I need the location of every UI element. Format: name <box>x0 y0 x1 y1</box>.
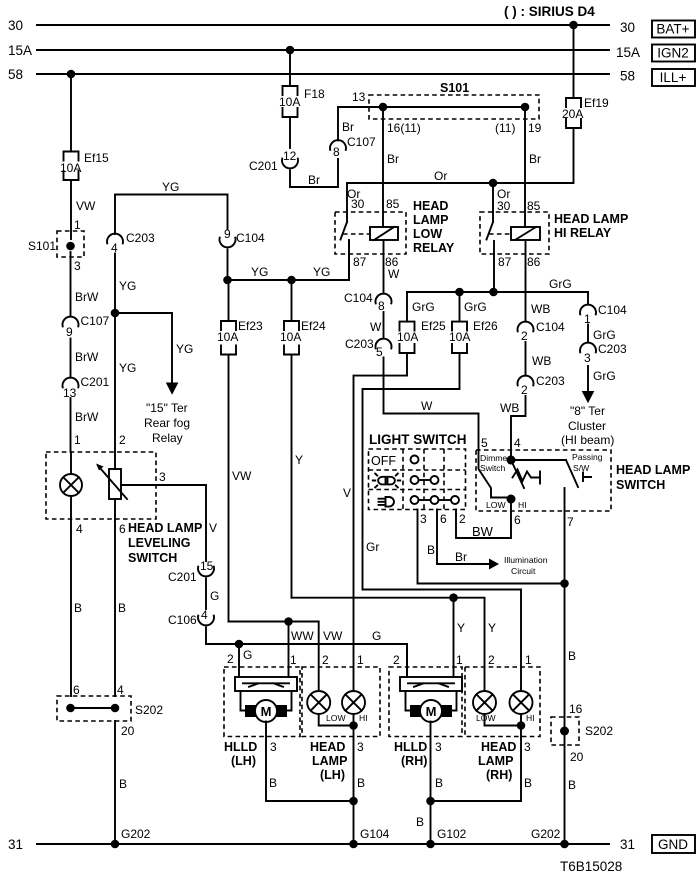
svg-text:"8" Ter: "8" Ter <box>570 404 605 418</box>
svg-text:15A: 15A <box>616 45 640 60</box>
svg-text:Ef23: Ef23 <box>238 319 263 333</box>
svg-text:HI: HI <box>359 713 368 723</box>
svg-text:V: V <box>209 521 217 535</box>
svg-text:YG: YG <box>251 265 268 279</box>
svg-text:C203: C203 <box>536 374 565 388</box>
svg-text:5: 5 <box>376 345 383 359</box>
svg-text:M: M <box>426 704 437 719</box>
svg-text:13: 13 <box>352 90 366 104</box>
svg-text:1: 1 <box>357 653 364 667</box>
svg-text:19: 19 <box>528 121 542 135</box>
svg-text:Relay: Relay <box>152 431 183 445</box>
svg-text:BrW: BrW <box>75 350 99 364</box>
svg-text:BW: BW <box>472 524 494 539</box>
svg-text:31: 31 <box>8 837 23 852</box>
svg-text:15: 15 <box>200 559 214 573</box>
svg-text:Br: Br <box>387 152 399 166</box>
svg-text:2: 2 <box>521 383 528 397</box>
svg-text:SWITCH: SWITCH <box>616 478 665 492</box>
svg-text:10A: 10A <box>60 161 81 175</box>
svg-text:WW: WW <box>291 629 314 643</box>
svg-text:RELAY: RELAY <box>413 241 455 255</box>
svg-text:BrW: BrW <box>75 410 99 424</box>
svg-text:C106: C106 <box>168 613 197 627</box>
svg-text:Cluster: Cluster <box>568 419 606 433</box>
svg-text:G: G <box>210 589 219 603</box>
svg-text:LOW: LOW <box>326 713 346 723</box>
svg-text:Ef26: Ef26 <box>473 319 498 333</box>
svg-text:B: B <box>427 543 435 557</box>
svg-text:B: B <box>435 776 443 790</box>
svg-text:Or: Or <box>434 169 447 183</box>
svg-text:VW: VW <box>323 629 343 643</box>
svg-text:12: 12 <box>283 149 297 163</box>
svg-text:3: 3 <box>357 740 364 754</box>
svg-text:2: 2 <box>322 653 329 667</box>
svg-text:Circuit: Circuit <box>511 566 536 576</box>
svg-text:Ef15: Ef15 <box>84 151 109 165</box>
svg-text:C201: C201 <box>249 159 278 173</box>
svg-text:1: 1 <box>74 218 81 232</box>
svg-text:1: 1 <box>456 653 463 667</box>
svg-text:LIGHT SWITCH: LIGHT SWITCH <box>369 432 467 447</box>
svg-text:C104: C104 <box>344 291 373 305</box>
svg-text:GND: GND <box>658 837 688 852</box>
svg-text:7: 7 <box>567 515 574 529</box>
svg-text:2: 2 <box>521 329 528 343</box>
svg-text:LAMP: LAMP <box>413 213 448 227</box>
svg-text:C203: C203 <box>345 337 374 351</box>
svg-text:Br: Br <box>308 173 320 187</box>
svg-text:4: 4 <box>514 436 521 450</box>
svg-text:Y: Y <box>488 621 496 635</box>
svg-text:M: M <box>261 704 272 719</box>
svg-text:IGN2: IGN2 <box>657 46 689 61</box>
svg-text:VW: VW <box>76 199 96 213</box>
svg-text:C104: C104 <box>536 320 565 334</box>
svg-text:HLLD: HLLD <box>224 740 257 754</box>
svg-text:C201: C201 <box>81 375 110 389</box>
svg-text:30: 30 <box>351 197 365 211</box>
svg-text:GrG: GrG <box>412 300 435 314</box>
svg-text:Ef19: Ef19 <box>584 96 609 110</box>
svg-text:58: 58 <box>620 69 635 84</box>
svg-text:HI: HI <box>518 500 527 510</box>
svg-text:G202: G202 <box>121 827 151 841</box>
svg-text:Br: Br <box>529 152 541 166</box>
svg-text:SWITCH: SWITCH <box>128 551 177 565</box>
svg-text:HEAD LAMP: HEAD LAMP <box>128 521 202 535</box>
svg-text:Switch: Switch <box>480 463 506 473</box>
svg-text:58: 58 <box>8 67 23 82</box>
svg-text:ILL+: ILL+ <box>660 70 687 85</box>
svg-text:LOW: LOW <box>413 227 442 241</box>
svg-text:31: 31 <box>620 837 635 852</box>
svg-text:9: 9 <box>66 325 73 339</box>
svg-text:87: 87 <box>498 255 512 269</box>
svg-text:LOW: LOW <box>476 713 496 723</box>
svg-text:S/W: S/W <box>573 463 590 473</box>
svg-text:GrG: GrG <box>593 328 616 342</box>
svg-text:V: V <box>343 486 351 500</box>
svg-text:3: 3 <box>435 740 442 754</box>
svg-text:C107: C107 <box>81 314 110 328</box>
svg-text:GrG: GrG <box>464 300 487 314</box>
svg-text:4: 4 <box>117 683 124 697</box>
svg-text:Ef24: Ef24 <box>301 319 326 333</box>
svg-text:HI RELAY: HI RELAY <box>554 226 612 240</box>
svg-text:T6B15028: T6B15028 <box>560 859 622 874</box>
svg-text:S101: S101 <box>28 239 56 253</box>
svg-text:W: W <box>370 320 382 334</box>
svg-text:(RH): (RH) <box>401 754 427 768</box>
svg-text:HI: HI <box>526 713 535 723</box>
svg-text:LAMP: LAMP <box>478 754 513 768</box>
svg-text:6: 6 <box>119 522 126 536</box>
svg-text:B: B <box>568 649 576 663</box>
svg-text:9: 9 <box>224 227 231 241</box>
svg-text:2: 2 <box>119 433 126 447</box>
svg-text:GrG: GrG <box>593 369 616 383</box>
svg-text:B: B <box>74 601 82 615</box>
svg-text:3: 3 <box>74 259 81 273</box>
svg-text:1: 1 <box>525 653 532 667</box>
svg-text:BrW: BrW <box>75 290 99 304</box>
svg-text:30: 30 <box>497 199 511 213</box>
svg-text:6: 6 <box>514 513 521 527</box>
svg-text:8: 8 <box>333 145 340 159</box>
svg-text:86: 86 <box>527 255 541 269</box>
svg-text:S202: S202 <box>585 724 613 738</box>
svg-text:30: 30 <box>8 18 23 33</box>
svg-text:Illumination: Illumination <box>504 555 548 565</box>
svg-text:HEAD: HEAD <box>310 740 345 754</box>
svg-text:6: 6 <box>73 683 80 697</box>
svg-text:W: W <box>421 399 433 413</box>
svg-text:G: G <box>243 648 252 662</box>
svg-text:G104: G104 <box>360 827 390 841</box>
svg-text:4: 4 <box>201 608 208 622</box>
svg-text:Dimmer: Dimmer <box>480 453 510 463</box>
svg-text:LOW: LOW <box>486 500 506 510</box>
svg-text:G102: G102 <box>437 827 467 841</box>
svg-text:3: 3 <box>584 351 591 365</box>
svg-text:20: 20 <box>121 724 135 738</box>
svg-text:"15" Ter: "15" Ter <box>146 401 188 415</box>
svg-text:85: 85 <box>386 197 400 211</box>
svg-text:16: 16 <box>569 702 583 716</box>
svg-text:B: B <box>416 815 424 829</box>
svg-text:10A: 10A <box>217 330 238 344</box>
svg-text:BAT+: BAT+ <box>656 22 689 37</box>
svg-text:VW: VW <box>232 469 252 483</box>
svg-text:3: 3 <box>524 740 531 754</box>
svg-text:F18: F18 <box>304 87 325 101</box>
svg-text:Passing: Passing <box>572 452 603 462</box>
svg-text:OFF: OFF <box>371 454 396 468</box>
svg-text:2: 2 <box>488 653 495 667</box>
svg-text:2: 2 <box>227 652 234 666</box>
svg-text:(11): (11) <box>495 121 515 135</box>
svg-text:3: 3 <box>159 470 166 484</box>
svg-text:HEAD: HEAD <box>413 199 448 213</box>
svg-text:HEAD: HEAD <box>481 740 516 754</box>
svg-text:1: 1 <box>74 433 81 447</box>
svg-text:LEVELING: LEVELING <box>128 536 191 550</box>
svg-text:WB: WB <box>500 401 519 415</box>
svg-text:B: B <box>524 776 532 790</box>
svg-text:HLLD: HLLD <box>394 740 427 754</box>
svg-text:YG: YG <box>176 342 193 356</box>
svg-text:87: 87 <box>353 255 367 269</box>
svg-text:C104: C104 <box>236 231 265 245</box>
svg-text:(LH): (LH) <box>231 754 256 768</box>
svg-text:B: B <box>118 601 126 615</box>
svg-text:Gr: Gr <box>366 540 379 554</box>
svg-text:WB: WB <box>531 302 550 316</box>
svg-text:GrG: GrG <box>549 277 572 291</box>
svg-text:B: B <box>269 776 277 790</box>
svg-text:20: 20 <box>570 750 584 764</box>
svg-text:Rear fog: Rear fog <box>144 416 190 430</box>
svg-text:( ) : SIRIUS D4: ( ) : SIRIUS D4 <box>504 4 595 19</box>
svg-text:W: W <box>388 267 400 281</box>
svg-text:Br: Br <box>342 120 354 134</box>
svg-text:Br: Br <box>455 550 467 564</box>
svg-text:LAMP: LAMP <box>312 754 347 768</box>
svg-text:C203: C203 <box>598 342 627 356</box>
svg-text:10A: 10A <box>280 330 301 344</box>
svg-text:1: 1 <box>290 653 297 667</box>
svg-text:B: B <box>119 777 127 791</box>
svg-text:S101: S101 <box>440 81 469 95</box>
svg-text:YG: YG <box>162 180 179 194</box>
svg-text:WB: WB <box>532 354 551 368</box>
svg-text:YG: YG <box>119 279 136 293</box>
svg-text:Y: Y <box>295 453 303 467</box>
svg-text:10A: 10A <box>397 330 418 344</box>
svg-text:G202: G202 <box>531 827 561 841</box>
svg-text:YG: YG <box>119 361 136 375</box>
svg-text:S202: S202 <box>135 703 163 717</box>
svg-text:G: G <box>372 629 381 643</box>
svg-text:4: 4 <box>76 522 83 536</box>
svg-text:15A: 15A <box>8 43 32 58</box>
svg-text:HEAD LAMP: HEAD LAMP <box>554 212 628 226</box>
svg-text:(LH): (LH) <box>320 768 345 782</box>
svg-text:C107: C107 <box>347 135 376 149</box>
svg-text:10A: 10A <box>279 95 300 109</box>
svg-text:85: 85 <box>527 199 541 213</box>
svg-text:6: 6 <box>440 512 447 526</box>
svg-text:B: B <box>357 776 365 790</box>
svg-text:30: 30 <box>620 20 635 35</box>
svg-text:10A: 10A <box>449 330 470 344</box>
svg-text:2: 2 <box>459 512 466 526</box>
svg-text:C203: C203 <box>126 231 155 245</box>
svg-text:(RH): (RH) <box>486 768 512 782</box>
svg-text:2: 2 <box>393 653 400 667</box>
svg-text:5: 5 <box>481 436 488 450</box>
svg-text:Ef25: Ef25 <box>421 319 446 333</box>
svg-text:8: 8 <box>378 299 385 313</box>
svg-text:16(11): 16(11) <box>387 121 421 135</box>
svg-text:3: 3 <box>270 740 277 754</box>
svg-text:3: 3 <box>420 512 427 526</box>
svg-text:Y: Y <box>457 621 465 635</box>
svg-text:(HI beam): (HI beam) <box>561 433 614 447</box>
svg-text:C201: C201 <box>168 570 197 584</box>
svg-text:B: B <box>568 778 576 792</box>
svg-text:HEAD LAMP: HEAD LAMP <box>616 463 690 477</box>
svg-text:YG: YG <box>313 265 330 279</box>
svg-text:C104: C104 <box>598 303 627 317</box>
svg-text:20A: 20A <box>562 107 583 121</box>
